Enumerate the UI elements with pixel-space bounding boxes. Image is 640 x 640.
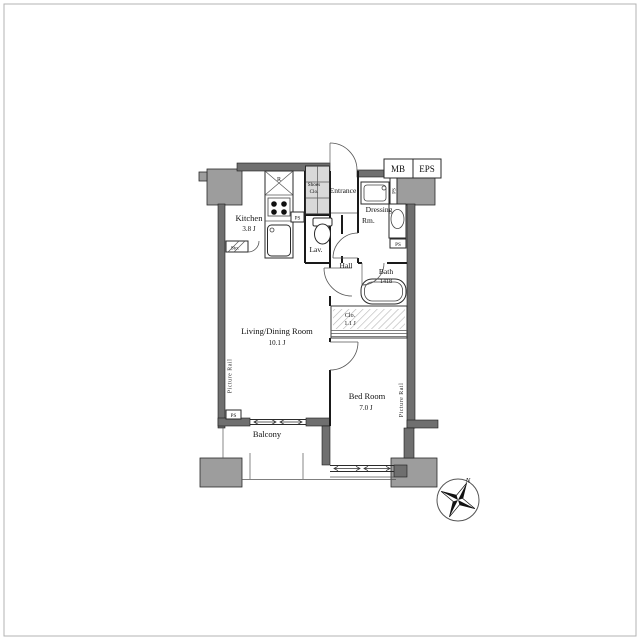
wall-bedroom-window-stub <box>394 465 407 477</box>
shoes-closet: Shoes Clo. <box>306 166 330 214</box>
eps-label: EPS <box>419 164 435 174</box>
kitchen-sink <box>268 225 291 256</box>
stove-burner <box>271 201 277 207</box>
stove-burner <box>271 209 277 215</box>
north-label: N <box>465 477 471 485</box>
balcony-rail-posts <box>250 453 303 479</box>
pillar-top-left-tab <box>199 172 207 181</box>
meter-box-label: MB <box>391 164 405 174</box>
pillar-bottom-left <box>200 458 242 487</box>
ps-label-bath: PS <box>395 242 401 248</box>
shoes-closet-label-1: Shoes <box>308 182 320 188</box>
compass-star-dark <box>441 483 475 517</box>
living-dining-size: 10.1 J <box>269 339 286 347</box>
entrance-label: Entrance <box>330 186 357 195</box>
bath-size: 1418 <box>380 279 392 285</box>
bedroom-door-arc <box>330 342 358 370</box>
closet-area: Clo. 1.1 J <box>331 306 407 338</box>
ps-label-ldk: PS <box>231 413 237 419</box>
dressing-label-2: Rm. <box>362 216 375 225</box>
wall-stub-bottom-right <box>407 420 438 428</box>
storage-door-arc <box>248 241 259 252</box>
toilet-bowl <box>315 224 331 244</box>
hall-door-arc <box>324 268 352 296</box>
dressing-door-arc <box>333 233 358 258</box>
ps-label-kitchen: PS <box>295 216 301 222</box>
bed-room-size: 7.0 J <box>359 404 373 412</box>
wall-bedroom-balcony <box>322 426 330 465</box>
storage-label: Sto. <box>231 246 239 252</box>
refrigerator-label: R <box>277 177 281 183</box>
hall-label: Hall <box>340 261 353 270</box>
living-dining-label: Living/Dining Room <box>241 326 313 336</box>
bed-room-label: Bed Room <box>349 391 386 401</box>
pillar-top-left <box>207 169 242 205</box>
stove-burner <box>281 209 287 215</box>
closet-label: Clo. <box>345 313 356 319</box>
lavatory-label: Lav. <box>309 245 322 254</box>
wall-left <box>218 204 225 428</box>
ldk-window-arrows <box>254 420 302 424</box>
kitchen-size: 3.8 J <box>242 225 256 233</box>
ps-label-top: PS <box>392 188 398 194</box>
floorplan-svg: MB EPS R Sto. Shoes Clo. <box>0 0 640 640</box>
bath-label: Bath <box>379 267 393 276</box>
shoes-closet-label-2: Clo. <box>310 189 319 195</box>
stove-burner <box>281 201 287 207</box>
closet-size: 1.1 J <box>344 321 356 327</box>
balcony-label: Balcony <box>253 429 282 439</box>
picture-rail-left-label: Picture Rail <box>228 359 234 394</box>
floorplan-canvas: MB EPS R Sto. Shoes Clo. <box>0 0 640 640</box>
toilet <box>313 218 332 244</box>
wall-ldk-bottom-right <box>306 418 330 426</box>
compass: N <box>437 477 479 521</box>
service-boxes: MB EPS <box>384 159 441 178</box>
pillar-top-right-block <box>396 177 435 205</box>
bedroom-window-arrows <box>334 466 390 470</box>
wall-to-pillar-right <box>404 428 414 458</box>
entrance-door-arc <box>330 143 357 170</box>
closet-sliding-doors <box>331 331 407 337</box>
image-border <box>4 4 636 636</box>
kitchen-label: Kitchen <box>236 213 264 223</box>
wall-right <box>407 204 415 428</box>
picture-rail-right-label: Picture Rail <box>399 383 405 418</box>
dressing-label-1: Dressing <box>366 205 393 214</box>
